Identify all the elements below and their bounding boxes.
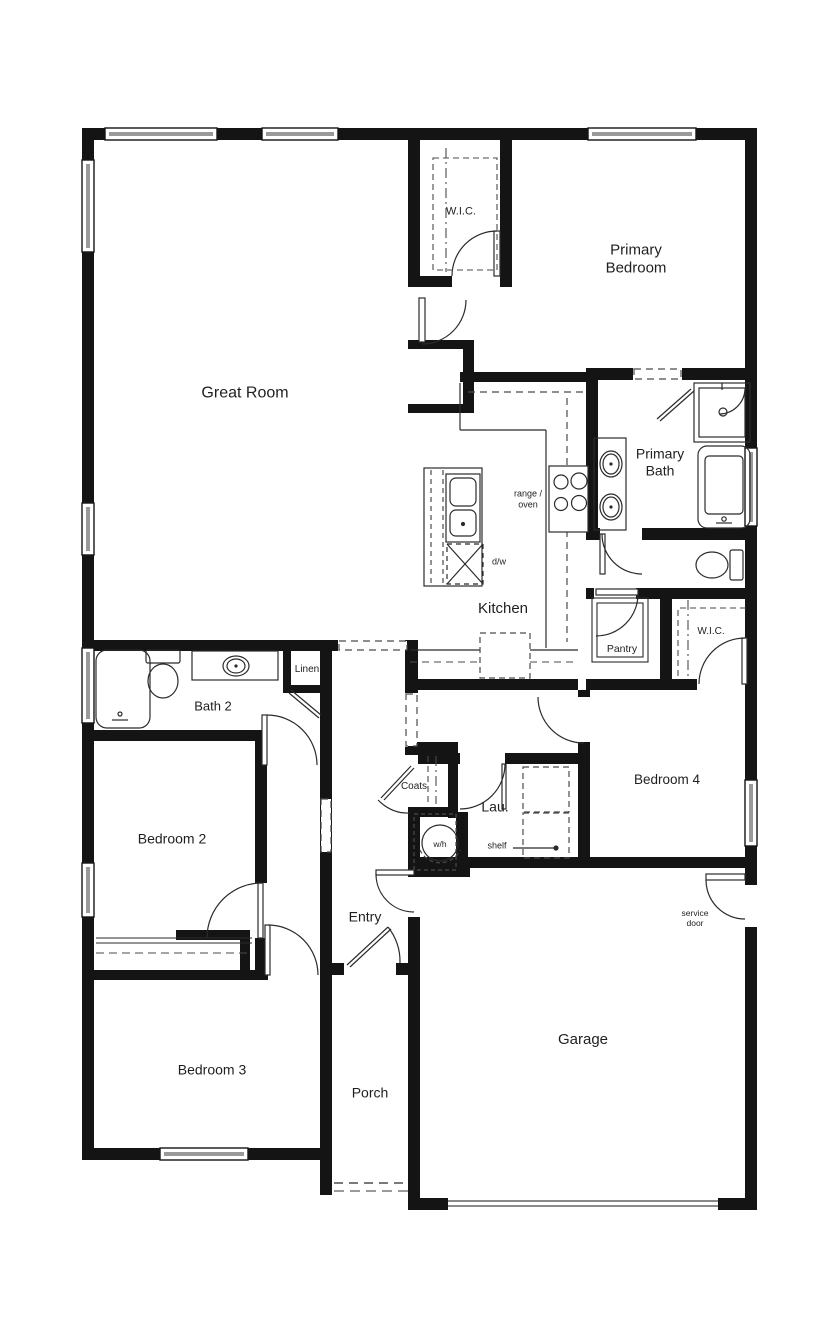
floor-plan-document: Great RoomW.I.C.PrimaryBedroomPrimaryBat…: [0, 0, 840, 1342]
door-swing-icon: [600, 534, 642, 574]
washer-dryer-space-icon: [523, 767, 569, 858]
closet-details: [96, 148, 748, 953]
kitchen-fixtures: [410, 383, 588, 678]
wic-shelving: [433, 158, 497, 270]
walls: [82, 128, 757, 1210]
door-swing-icon: [289, 690, 321, 718]
door-swing-icon: [699, 638, 747, 684]
toilet-icon: [146, 650, 180, 698]
door-swing-icon: [419, 298, 466, 344]
front-door-icon: [347, 927, 400, 967]
door-swing-icon: [452, 231, 500, 276]
door-swing-icon: [378, 766, 414, 813]
kitchen-island-icon: [424, 468, 483, 586]
door-swing-icon: [265, 925, 318, 975]
range-oven-icon: [549, 466, 588, 532]
shelf-pointer: [513, 846, 558, 850]
door-swing-icon: [207, 883, 263, 938]
laundry-fixtures: [414, 767, 569, 870]
door-swing-icon: [262, 715, 317, 765]
toilet-icon: [696, 550, 743, 580]
service-door-icon: [706, 874, 745, 919]
bath2-fixtures: [96, 650, 278, 728]
sink-icon: [192, 651, 278, 680]
bathtub-icon: [96, 650, 150, 728]
openings: [321, 369, 757, 1210]
door-swing-icon: [460, 764, 506, 809]
porch-edge: [334, 1183, 408, 1191]
door-swing-icon: [596, 589, 638, 636]
sink-icon: [446, 474, 480, 542]
floor-plan-drawing: [0, 0, 840, 1342]
shower-icon: [694, 383, 750, 442]
door-swing-icon: [538, 697, 584, 743]
door-swing-icon: [657, 389, 694, 421]
bathtub-icon: [698, 446, 750, 528]
sink-icon: [594, 438, 626, 530]
primary-bath-fixtures: [594, 383, 750, 580]
